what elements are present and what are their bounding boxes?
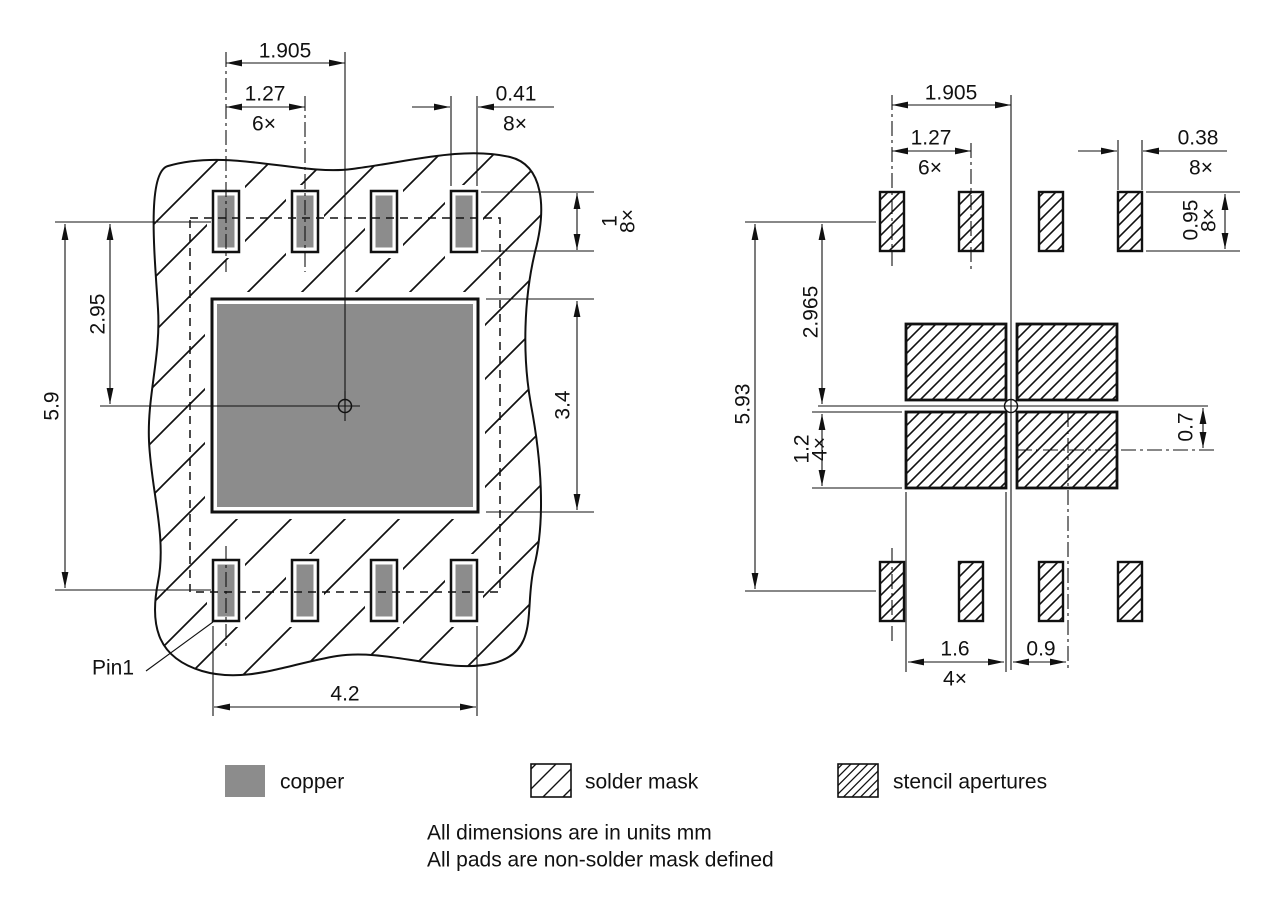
legend-swatch-copper: [225, 765, 265, 797]
notes: All dimensions are in units mm All pads …: [427, 821, 774, 871]
dim-label: 1.905: [259, 39, 312, 62]
legend-item-solder-mask: solder mask: [531, 764, 699, 797]
pcb-land-pattern-drawing: 1.905 1.27 6× 0.41 8× 1 8×: [0, 0, 1280, 905]
dim-pitch-span-right: 1.905: [892, 81, 1011, 105]
dim-qty: 6×: [252, 112, 276, 135]
legend-swatch-solder-mask: [531, 764, 571, 797]
copper-pad: [371, 560, 397, 621]
dim-aperture-height-right: 0.95 8×: [1146, 192, 1240, 251]
dim-qty: 8×: [503, 112, 527, 135]
dim-thermal-offset-x-right: 0.9: [1013, 637, 1066, 662]
dim-label: 0.38: [1178, 126, 1219, 149]
copper-land-pattern-view: 1.905 1.27 6× 0.41 8× 1 8×: [40, 39, 639, 716]
thermal-aperture: [1017, 324, 1117, 400]
copper-pad: [371, 191, 397, 252]
dim-label: 1.27: [911, 126, 952, 149]
dim-thermal-aperture-width-right: 1.6 4×: [906, 492, 1006, 690]
dim-thermal-offset-y-right: 0.7: [1174, 408, 1203, 448]
stencil-aperture: [1118, 562, 1142, 621]
legend-label-solder-mask: solder mask: [585, 770, 699, 793]
dim-qty: 8×: [616, 209, 639, 233]
dim-row-span-right: 5.93: [731, 224, 876, 591]
thermal-aperture: [906, 324, 1006, 400]
thermal-aperture: [906, 412, 1006, 488]
pin1-label: Pin1: [92, 656, 134, 679]
dim-label: 1.27: [245, 82, 286, 105]
dim-qty: 6×: [918, 156, 942, 179]
dim-qty: 4×: [808, 437, 831, 461]
note-units: All dimensions are in units mm: [427, 821, 712, 844]
stencil-aperture: [959, 562, 983, 621]
note-mask-defined: All pads are non-solder mask defined: [427, 848, 774, 871]
dim-label: 0.9: [1026, 637, 1055, 660]
dim-label: 0.41: [496, 82, 537, 105]
legend-label-stencil: stencil apertures: [893, 770, 1047, 793]
dim-pitch-span-left: 1.905: [226, 39, 345, 63]
dim-pitch-left: 1.27 6×: [226, 82, 305, 135]
dim-label: 5.9: [40, 391, 63, 420]
copper-pad: [451, 191, 477, 252]
dim-label: 1.905: [925, 81, 978, 104]
dim-label: 1.6: [940, 637, 969, 660]
copper-pad: [292, 560, 318, 621]
dim-qty: 8×: [1197, 208, 1220, 232]
dim-qty: 4×: [943, 667, 967, 690]
dim-thermal-aperture-height-right: 1.2 4×: [790, 412, 902, 488]
dim-row-offset-right: 2.965: [745, 222, 876, 404]
stencil-aperture: [1039, 562, 1063, 621]
copper-pad: [451, 560, 477, 621]
dim-label: 4.2: [330, 682, 359, 705]
dim-pitch-right: 1.27 6×: [892, 126, 971, 179]
dim-label: 2.965: [799, 286, 822, 339]
legend-swatch-stencil: [838, 764, 878, 797]
legend-item-copper: copper: [225, 765, 344, 797]
dim-qty: 8×: [1189, 156, 1213, 179]
stencil-aperture: [1039, 192, 1063, 251]
dim-label: 3.4: [551, 390, 574, 420]
stencil-aperture: [1118, 192, 1142, 251]
legend: copper solder mask stencil apertures: [225, 764, 1047, 797]
drawing-canvas: 1.905 1.27 6× 0.41 8× 1 8×: [0, 0, 1280, 905]
dim-aperture-width-right: 0.38 8×: [1078, 126, 1227, 190]
dim-label: 0.7: [1174, 412, 1197, 441]
legend-item-stencil: stencil apertures: [838, 764, 1047, 797]
stencil-aperture-view: 1.905 1.27 6× 0.38 8× 0.95 8×: [731, 81, 1240, 690]
dim-label: 5.93: [731, 384, 754, 425]
legend-label-copper: copper: [280, 770, 344, 793]
dim-label: 2.95: [86, 294, 109, 335]
